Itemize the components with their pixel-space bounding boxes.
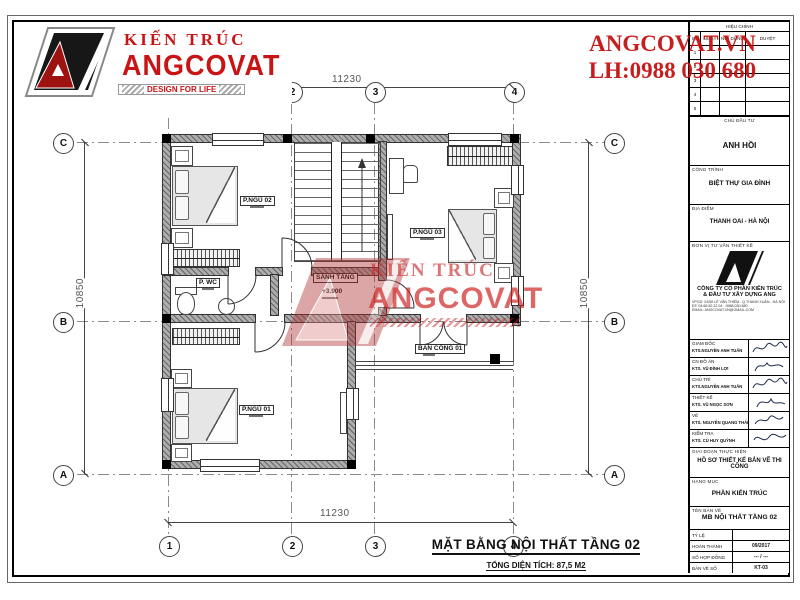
- level-sub: [322, 297, 338, 299]
- column: [162, 460, 171, 469]
- revision-cell: [720, 102, 746, 116]
- investor-label: CHỦ ĐẦU TƯ: [690, 117, 789, 123]
- window: [161, 378, 174, 412]
- signature-role: GIÁM ĐỐC: [692, 341, 748, 346]
- revision-cell: [720, 88, 746, 102]
- pillow: [175, 196, 189, 220]
- company-contact3: EMAIL: ANGCOVAT.VN@GMAIL.COM: [690, 308, 789, 312]
- category-section: HẠNG MỤC PHẦN KIẾN TRÚC: [690, 478, 789, 507]
- signature-who: THIẾT KẾKTS. VŨ NGỌC SƠN: [690, 394, 749, 411]
- meta-label: BẢN VẼ SỐ: [690, 563, 733, 573]
- tagline-hatch-right: [219, 85, 241, 94]
- stage-value: HỒ SƠ THIẾT KẾ BẢN VẼ THI CÔNG: [690, 458, 789, 470]
- location-label: ĐỊA ĐIỂM: [690, 205, 789, 211]
- room-label-bedroom2: P.NGỦ 02: [240, 196, 275, 206]
- column: [366, 134, 375, 143]
- signature-name: KTS. VŨ ĐÌNH LỢI: [692, 366, 748, 371]
- chair: [403, 165, 418, 183]
- grid-bubble-bottom-2: 2: [282, 536, 303, 557]
- window: [511, 276, 524, 306]
- signature-glyph: [749, 394, 789, 411]
- signature-glyph: [749, 340, 789, 357]
- meta-label: HOÀN THÀNH: [690, 541, 733, 551]
- signature-role: CHỦ TRÌ: [692, 377, 748, 382]
- signature-role: KIỂM TRA: [692, 431, 748, 436]
- meta-row-sheet-number: BẢN VẼ SỐ KT-03: [690, 563, 789, 573]
- signature-row: GIÁM ĐỐCKTS.NGUYỄN ANH TUẤN: [690, 340, 789, 358]
- wardrobe: [172, 249, 240, 267]
- grid-bubble-left-A: A: [53, 465, 74, 486]
- pillow: [483, 213, 495, 235]
- column: [347, 460, 356, 469]
- window: [346, 388, 359, 420]
- tagline-text: DESIGN FOR LIFE: [147, 85, 216, 94]
- signature-row: KIỂM TRAKTS. CÙ HUY QUỲNH: [690, 430, 789, 448]
- signature-role: VẼ: [692, 413, 748, 418]
- wardrobe: [447, 146, 513, 166]
- signature-row: THIẾT KẾKTS. VŨ NGỌC SƠN: [690, 394, 789, 412]
- wall-grid-b-2: [285, 315, 420, 322]
- window: [161, 243, 174, 275]
- blanket-fold: [206, 389, 235, 441]
- revision-row-num: 5: [690, 102, 701, 116]
- grid-bubble-right-C: C: [604, 133, 625, 154]
- investor-value: ANH HỒI: [690, 141, 789, 150]
- signature-name: KTS.NGUYỄN ANH TUẤN: [692, 348, 748, 353]
- room-label-bedroom1: P.NGỦ 01: [239, 405, 274, 415]
- grid-line-A: [56, 474, 622, 475]
- consultant-label: ĐƠN VỊ TƯ VẤN THIẾT KẾ: [690, 242, 789, 248]
- column: [510, 314, 519, 323]
- room-label-sub: [250, 206, 264, 208]
- grid-bubble-right-A: A: [604, 465, 625, 486]
- grid-bubble-left-B: B: [53, 312, 74, 333]
- nightstand: [171, 146, 193, 166]
- location-section: ĐỊA ĐIỂM THANH OAI - HÀ NỘI: [690, 205, 789, 242]
- signature-who: GIÁM ĐỐCKTS.NGUYỄN ANH TUẤN: [690, 340, 749, 357]
- grid-bubble-bottom-3: 3: [365, 536, 386, 557]
- meta-value: --- / ---: [733, 554, 789, 560]
- wall-mid-lower: [379, 308, 386, 315]
- plan-title-group: MẶT BẰNG NỘI THẤT TẦNG 02 TỔNG DIỆN TÍCH…: [392, 536, 680, 573]
- dim-label-right: 10850: [577, 278, 592, 308]
- logo-text-kientruc: KIẾN TRÚC: [124, 30, 247, 50]
- balcony-post: [490, 354, 500, 364]
- header-watermark-phone: LH:0988 030 680: [555, 57, 790, 84]
- pillow: [175, 392, 189, 415]
- signature-name: KTS. VŨ NGỌC SƠN: [692, 402, 748, 407]
- dim-label-left: 10850: [73, 278, 88, 308]
- dim-label-bottom: 11230: [318, 508, 352, 519]
- room-label-sub: [249, 415, 263, 417]
- signature-role: THIẾT KẾ: [692, 395, 748, 400]
- revision-row-num: 4: [690, 88, 701, 102]
- wardrobe: [172, 328, 240, 345]
- logo-block: KIẾN TRÚC ANGCOVAT DESIGN FOR LIFE: [22, 24, 292, 104]
- pillow: [175, 170, 189, 194]
- stage-label: GIAI ĐOẠN THỰC HIỆN: [690, 448, 789, 454]
- meta-label: SỐ HỢP ĐỒNG: [690, 552, 733, 562]
- signature-row: CN ĐỒ ÁNKTS. VŨ ĐÌNH LỢI: [690, 358, 789, 376]
- meta-value: KT-03: [733, 565, 789, 571]
- company-line2: & ĐẦU TƯ XÂY DỰNG ANG: [690, 292, 789, 298]
- dim-label-top: 11230: [330, 74, 364, 85]
- category-value: PHẦN KIẾN TRÚC: [690, 490, 789, 497]
- category-label: HẠNG MỤC: [690, 478, 789, 484]
- meta-value: 09/2017: [733, 543, 789, 549]
- title-block: HIỆU CHỈNH SỐ NGÀY NỘI DUNG DUYỆT 1 2 3 …: [688, 22, 789, 573]
- drawing-sheet: KIẾN TRÚC ANGCOVAT DESIGN FOR LIFE ANGCO…: [0, 0, 800, 600]
- signature-who: CN ĐỒ ÁNKTS. VŨ ĐÌNH LỢI: [690, 358, 749, 375]
- signature-glyph: [749, 412, 789, 429]
- window: [511, 165, 524, 195]
- drawing-name-value: MB NỘI THẤT TẦNG 02: [690, 514, 789, 521]
- signature-name: KTS.NGUYỄN ANH TUẤN: [692, 384, 748, 389]
- investor-section: CHỦ ĐẦU TƯ ANH HỒI: [690, 117, 789, 166]
- logo-text-angcovat: ANGCOVAT: [122, 50, 281, 83]
- stage-section: GIAI ĐOẠN THỰC HIỆN HỒ SƠ THIẾT KẾ BẢN V…: [690, 448, 789, 478]
- signature-role: CN ĐỒ ÁN: [692, 359, 748, 364]
- revision-cell: [701, 102, 720, 116]
- window: [448, 133, 502, 146]
- staircase-divider: [331, 142, 342, 260]
- project-value: BIỆT THỰ GIA ĐÌNH: [690, 180, 789, 187]
- wall-wc-top-2: [256, 268, 282, 275]
- signature-name: KTS. CÙ HUY QUỲNH: [692, 438, 748, 443]
- drawing-name-section: TÊN BẢN VẼ MB NỘI THẤT TẦNG 02: [690, 507, 789, 530]
- project-section: CÔNG TRÌNH BIỆT THỰ GIA ĐÌNH: [690, 166, 789, 205]
- plan-title: MẶT BẰNG NỘI THẤT TẦNG 02: [432, 537, 641, 555]
- window: [200, 459, 260, 472]
- header-watermark: ANGCOVAT.VN LH:0988 030 680: [555, 30, 790, 84]
- nightstand: [171, 228, 193, 248]
- toilet: [177, 292, 195, 315]
- hall-level: +3.900: [322, 288, 342, 295]
- meta-row-contract: SỐ HỢP ĐỒNG --- / ---: [690, 552, 789, 563]
- mirror: [387, 214, 393, 260]
- angcovat-logo-icon: [24, 26, 116, 100]
- revision-cell: [701, 88, 720, 102]
- signature-name: KTS. NGUYỄN QUANG THÁI: [692, 420, 748, 425]
- desk: [389, 158, 404, 194]
- nightstand: [171, 369, 192, 388]
- project-label: CÔNG TRÌNH: [690, 166, 789, 172]
- logo-tagline: DESIGN FOR LIFE: [118, 84, 245, 95]
- sink: [218, 298, 235, 315]
- wall-grid-b-1: [163, 315, 255, 322]
- room-label-hall: SẢNH TẦNG: [313, 273, 358, 283]
- room-label-bedroom3: P.NGỦ 03: [410, 228, 445, 238]
- blanket-fold: [206, 167, 235, 223]
- window: [212, 133, 264, 146]
- grid-bubble-right-B: B: [604, 312, 625, 333]
- signature-glyph: [749, 430, 789, 447]
- dim-line-bottom: [168, 522, 513, 523]
- grid-bubble-bottom-1: 1: [159, 536, 180, 557]
- meta-row-scale: TỶ LỆ: [690, 530, 789, 541]
- signature-row: VẼKTS. NGUYỄN QUANG THÁI: [690, 412, 789, 430]
- meta-label: TỶ LỆ: [690, 530, 733, 540]
- wall-left: [163, 135, 170, 468]
- revision-cell: [746, 88, 789, 102]
- signature-who: KIỂM TRAKTS. CÙ HUY QUỲNH: [690, 430, 749, 447]
- grid-bubble-left-C: C: [53, 133, 74, 154]
- column: [162, 134, 171, 143]
- grid-bubble-top-3: 3: [365, 82, 386, 103]
- pillow: [175, 416, 189, 439]
- room-label-wc: P. WC: [196, 278, 220, 288]
- location-value: THANH OAI - HÀ NỘI: [690, 219, 789, 225]
- consultant-section: ĐƠN VỊ TƯ VẤN THIẾT KẾ CÔNG TY CỔ PHẦN K…: [690, 242, 789, 340]
- blanket-fold: [449, 210, 476, 260]
- header-watermark-site: ANGCOVAT.VN: [555, 30, 790, 57]
- room-label-balcony: BAN CÔNG 01: [415, 344, 465, 354]
- signature-row: CHỦ TRÌKTS.NGUYỄN ANH TUẤN: [690, 376, 789, 394]
- room-label-sub: [202, 288, 214, 290]
- room-label-sub: [423, 354, 435, 356]
- wall-wc-right: [271, 275, 278, 315]
- signature-glyph: [749, 358, 789, 375]
- column: [162, 314, 171, 323]
- room-label-sub: [420, 238, 434, 240]
- signature-glyph: [749, 376, 789, 393]
- grid-bubble-top-4: 4: [504, 82, 525, 103]
- column: [510, 134, 519, 143]
- consultant-logo-icon: [714, 250, 766, 286]
- signature-who: CHỦ TRÌKTS.NGUYỄN ANH TUẤN: [690, 376, 749, 393]
- drawing-name-label: TÊN BẢN VẼ: [690, 507, 789, 513]
- column: [283, 134, 292, 143]
- signature-who: VẼKTS. NGUYỄN QUANG THÁI: [690, 412, 749, 429]
- meta-row-completed: HOÀN THÀNH 09/2017: [690, 541, 789, 552]
- plan-subtitle: TỔNG DIỆN TÍCH: 87,5 M2: [486, 561, 585, 571]
- revision-cell: [746, 102, 789, 116]
- pillow: [483, 237, 495, 259]
- nightstand: [171, 444, 192, 462]
- tagline-hatch-left: [122, 85, 144, 94]
